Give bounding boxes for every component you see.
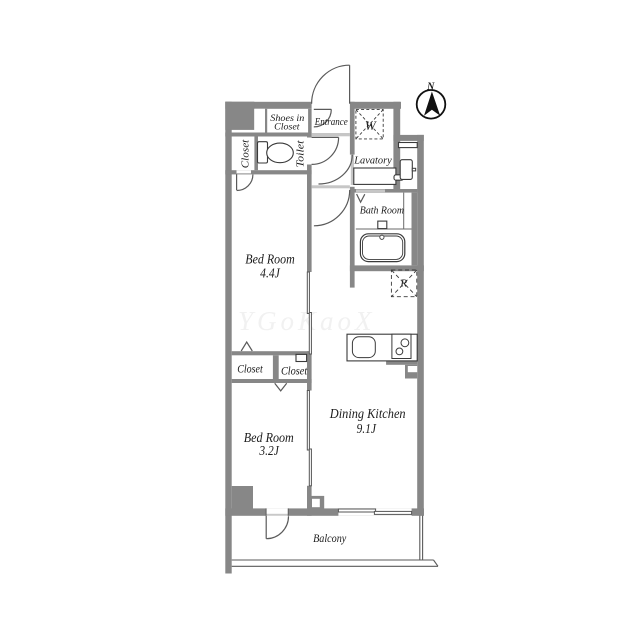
svg-text:3.2J: 3.2J [259, 443, 280, 458]
svg-text:Bath Room: Bath Room [360, 205, 404, 217]
svg-text:Balcony: Balcony [313, 531, 347, 545]
svg-text:4.4J: 4.4J [260, 265, 281, 280]
svg-text:W: W [365, 118, 377, 133]
svg-text:Closet: Closet [274, 123, 300, 133]
svg-text:Closet: Closet [237, 362, 263, 375]
svg-text:Dining Kitchen: Dining Kitchen [329, 407, 406, 422]
svg-text:Toilet: Toilet [296, 139, 307, 167]
svg-text:Bed Room: Bed Room [245, 251, 295, 266]
svg-text:Entrance: Entrance [314, 116, 348, 128]
svg-text:Closet: Closet [281, 366, 308, 378]
svg-text:Lavatory: Lavatory [353, 155, 392, 167]
svg-text:R: R [399, 278, 407, 290]
svg-text:N: N [426, 81, 435, 92]
svg-text:YGoKaoX: YGoKaoX [238, 306, 376, 336]
svg-text:Closet: Closet [240, 139, 251, 169]
svg-text:9.1J: 9.1J [356, 422, 376, 437]
